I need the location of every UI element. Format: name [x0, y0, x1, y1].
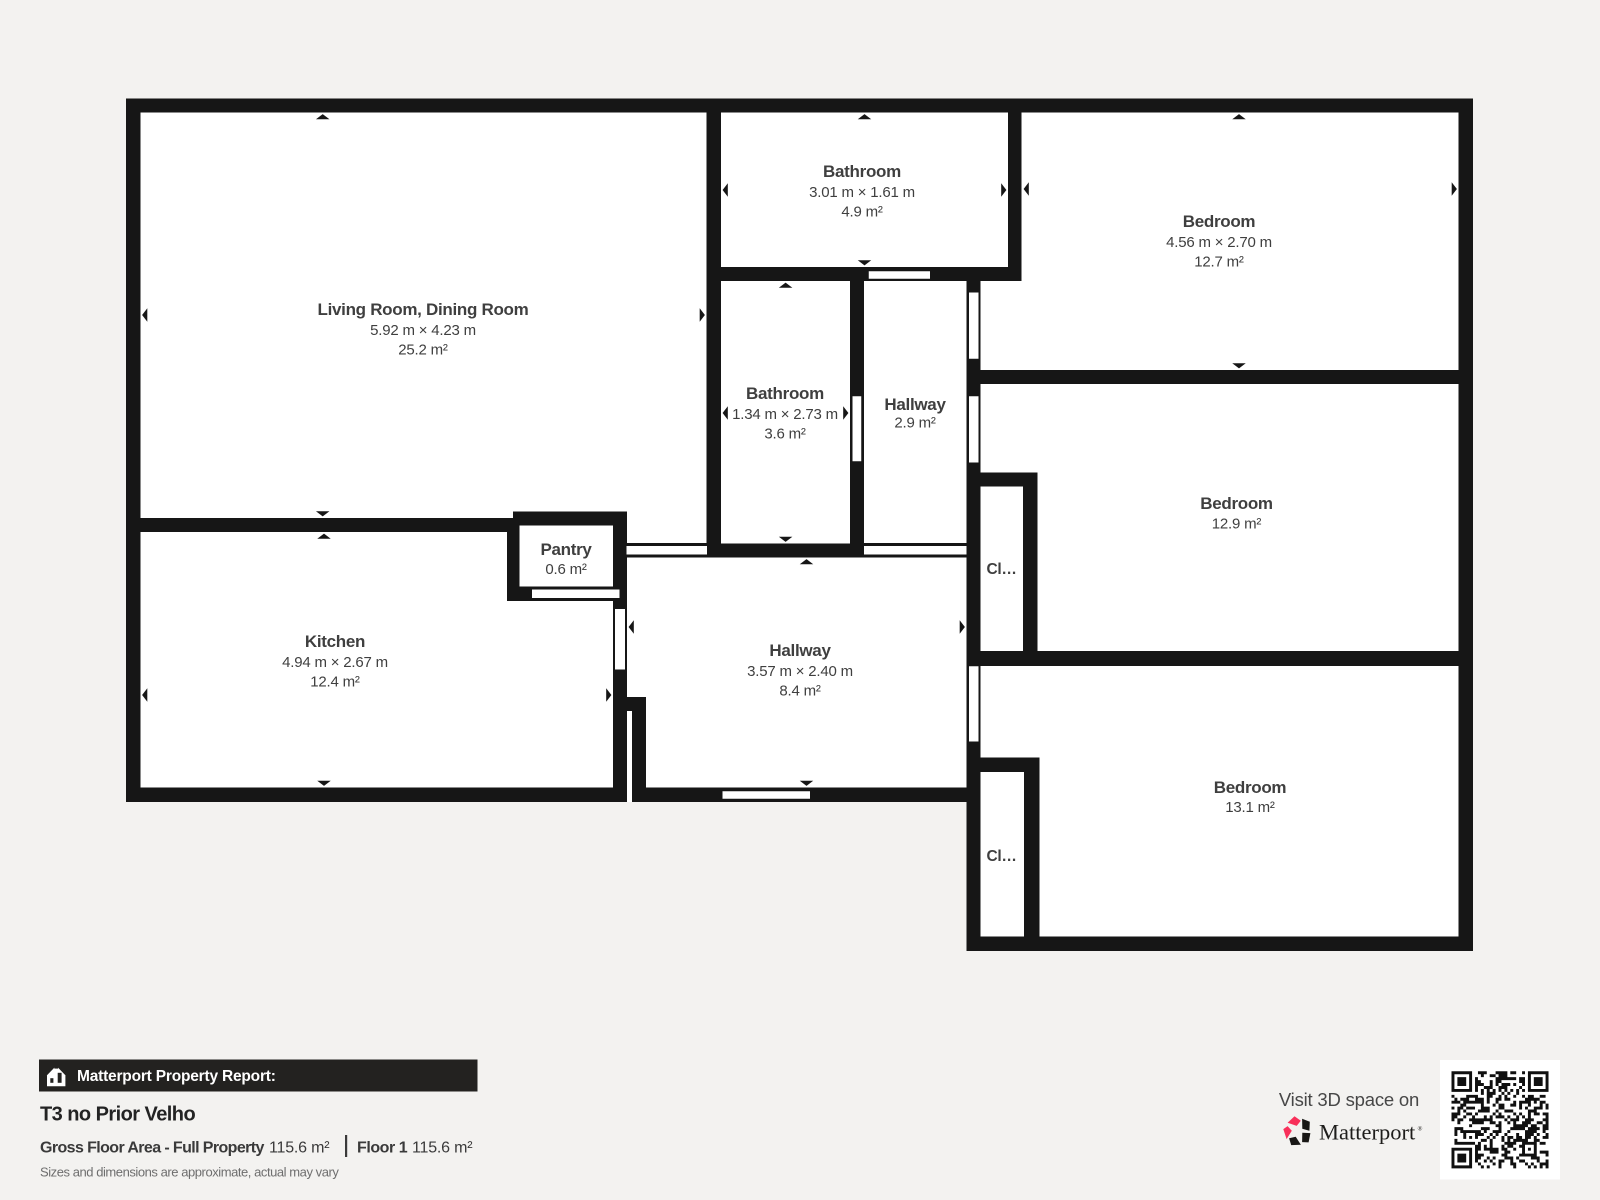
svg-text:Matterport Property Report:: Matterport Property Report:: [77, 1068, 276, 1085]
svg-text:Living Room, Dining Room: Living Room, Dining Room: [318, 300, 529, 319]
svg-text:Bedroom: Bedroom: [1183, 212, 1256, 231]
svg-text:Matterport: Matterport: [1319, 1120, 1416, 1145]
svg-text:Hallway: Hallway: [884, 395, 946, 414]
svg-text:115.6 m²: 115.6 m²: [269, 1140, 330, 1157]
svg-text:3.6 m²: 3.6 m²: [764, 426, 806, 443]
svg-text:Bathroom: Bathroom: [823, 162, 901, 181]
svg-text:4.56 m × 2.70 m: 4.56 m × 2.70 m: [1166, 234, 1272, 251]
svg-text:Hallway: Hallway: [769, 641, 831, 660]
svg-text:Cl…: Cl…: [986, 848, 1016, 865]
svg-text:Bathroom: Bathroom: [746, 384, 824, 403]
svg-text:Floor 1: Floor 1: [357, 1140, 408, 1157]
svg-text:4.94 m × 2.67 m: 4.94 m × 2.67 m: [282, 654, 388, 671]
svg-text:Cl…: Cl…: [986, 561, 1016, 578]
svg-text:115.6 m²: 115.6 m²: [412, 1140, 473, 1157]
svg-text:3.01 m × 1.61 m: 3.01 m × 1.61 m: [809, 184, 915, 201]
svg-text:®: ®: [1418, 1126, 1423, 1133]
svg-text:Kitchen: Kitchen: [305, 632, 365, 651]
svg-text:Bedroom: Bedroom: [1200, 494, 1273, 513]
svg-text:Pantry: Pantry: [540, 540, 592, 559]
svg-text:12.4 m²: 12.4 m²: [310, 674, 360, 691]
svg-text:8.4 m²: 8.4 m²: [779, 683, 821, 700]
svg-text:5.92 m × 4.23 m: 5.92 m × 4.23 m: [370, 322, 476, 339]
svg-text:0.6 m²: 0.6 m²: [545, 561, 587, 578]
svg-text:Bedroom: Bedroom: [1214, 778, 1287, 797]
svg-text:3.57 m × 2.40 m: 3.57 m × 2.40 m: [747, 663, 853, 680]
svg-text:12.7 m²: 12.7 m²: [1194, 254, 1244, 271]
svg-text:1.34 m × 2.73 m: 1.34 m × 2.73 m: [732, 406, 838, 423]
svg-text:13.1 m²: 13.1 m²: [1225, 799, 1275, 816]
svg-text:25.2 m²: 25.2 m²: [398, 342, 448, 359]
svg-text:2.9 m²: 2.9 m²: [894, 415, 936, 432]
svg-text:Visit 3D space on: Visit 3D space on: [1279, 1089, 1419, 1110]
svg-text:Sizes and dimensions are appro: Sizes and dimensions are approximate, ac…: [40, 1165, 339, 1180]
svg-text:4.9 m²: 4.9 m²: [841, 204, 883, 221]
svg-text:T3 no Prior Velho: T3 no Prior Velho: [40, 1104, 195, 1126]
svg-text:Gross Floor Area - Full Proper: Gross Floor Area - Full Property: [40, 1140, 265, 1157]
svg-text:12.9 m²: 12.9 m²: [1212, 516, 1262, 533]
